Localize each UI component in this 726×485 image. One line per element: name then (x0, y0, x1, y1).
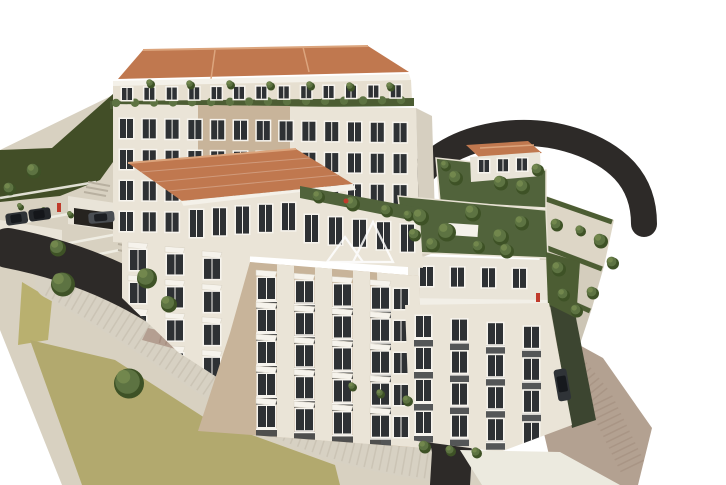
tree-highlight (117, 370, 131, 384)
tree-highlight (349, 383, 353, 387)
window-mullion (239, 87, 240, 99)
window-mullion (400, 123, 401, 142)
tree-highlight (533, 164, 538, 169)
window-mullion (149, 181, 150, 200)
tree-highlight (414, 210, 421, 217)
tree-highlight (517, 180, 523, 186)
window-mullion (495, 355, 496, 376)
tree-highlight (227, 81, 231, 85)
window-mullion (265, 205, 266, 232)
tree-highlight (474, 241, 479, 246)
window-awning (202, 284, 222, 291)
window-mullion (395, 85, 396, 97)
balcony-rail-top (294, 400, 315, 402)
balcony-rail-top (486, 346, 505, 348)
window-mullion (354, 122, 355, 141)
window-awning (256, 398, 277, 405)
balcony-rail-top (256, 333, 277, 335)
red-flower (344, 199, 349, 204)
balcony-rail-top (294, 368, 315, 370)
hedge-shrub (359, 96, 367, 104)
building-c-pilaster (353, 271, 370, 445)
window-mullion (401, 417, 402, 437)
window-awning (202, 317, 222, 324)
tree-highlight (472, 448, 477, 453)
window-mullion (216, 87, 217, 99)
car-windshield (33, 210, 45, 220)
window-mullion (149, 119, 150, 138)
tree-highlight (410, 229, 415, 234)
window-awning (165, 246, 185, 253)
window-awning (256, 334, 277, 341)
tree-highlight (588, 287, 593, 292)
window-mullion (359, 220, 360, 247)
balcony-rail-top (332, 339, 353, 341)
tree-highlight (307, 82, 311, 86)
tree-highlight (559, 289, 564, 294)
tree-highlight (501, 244, 507, 250)
window-mullion (331, 153, 332, 172)
window-mullion (283, 86, 284, 98)
window-mullion (426, 267, 427, 286)
window-mullion (401, 289, 402, 309)
window-mullion (263, 121, 264, 140)
tree-highlight (404, 211, 409, 216)
window-awning (370, 280, 391, 287)
window-mullion (531, 359, 532, 380)
hedge-shrub (112, 99, 120, 107)
tree-highlight (495, 176, 501, 182)
window-mullion (126, 119, 127, 138)
window-mullion (459, 384, 460, 405)
penthouse-cottage-windows (478, 157, 529, 174)
balcony-rail-top (256, 397, 277, 399)
window-mullion (335, 217, 336, 244)
window-mullion (194, 87, 195, 99)
window-mullion (138, 283, 139, 303)
balcony-rail-top (294, 432, 315, 434)
balcony-rail-top (332, 371, 353, 373)
window-mullion (266, 374, 267, 395)
window-mullion (531, 391, 532, 412)
hedge-shrub (245, 97, 253, 105)
window-awning (294, 305, 315, 312)
balcony-rail-top (332, 307, 353, 309)
window-awning (294, 273, 315, 280)
balcony-rail-top (414, 339, 433, 341)
window-awning (294, 369, 315, 376)
tree-highlight (387, 83, 391, 87)
window-mullion (423, 380, 424, 401)
window-mullion (407, 225, 408, 252)
tree-highlight (68, 212, 71, 215)
tree-highlight (572, 305, 577, 310)
window-mullion (423, 316, 424, 337)
window-mullion (342, 380, 343, 401)
window-mullion (172, 213, 173, 232)
window-awning (370, 376, 391, 383)
window-mullion (311, 215, 312, 242)
window-mullion (459, 416, 460, 437)
window-awning (294, 337, 315, 344)
window-mullion (488, 268, 489, 287)
window-mullion (342, 412, 343, 433)
tree-highlight (28, 164, 34, 170)
window-awning (202, 350, 222, 357)
balcony-rail-top (486, 378, 505, 380)
window-mullion (138, 250, 139, 270)
balcony-rail-top (414, 435, 433, 437)
window-mullion (354, 153, 355, 172)
window-mullion (401, 385, 402, 405)
balcony-rail-top (370, 374, 391, 376)
tree-highlight (446, 446, 451, 451)
tree-highlight (314, 191, 319, 196)
tree-highlight (187, 81, 191, 85)
render-viewport: Aerial 3D architectural rendering of a h… (0, 0, 726, 485)
balcony-rail-top (370, 342, 391, 344)
window-awning (332, 276, 353, 283)
window-mullion (266, 406, 267, 427)
balcony-rail-top (294, 336, 315, 338)
tree-highlight (139, 269, 148, 278)
balcony-rail-top (256, 429, 277, 431)
balcony-rail-top (294, 304, 315, 306)
balcony-rail-top (414, 403, 433, 405)
window-awning (256, 302, 277, 309)
window-awning (165, 279, 185, 286)
window-mullion (531, 327, 532, 348)
window-mullion (459, 320, 460, 341)
red-accent (536, 293, 540, 302)
window-mullion (373, 86, 374, 98)
tree-highlight (51, 241, 58, 248)
window-awning (202, 251, 222, 258)
tree-highlight (553, 262, 559, 268)
window-mullion (194, 120, 195, 139)
balcony-rail-top (486, 442, 505, 444)
tree-highlight (147, 80, 151, 84)
window-mullion (495, 323, 496, 344)
window-mullion (304, 281, 305, 302)
window-awning (256, 270, 277, 277)
window-mullion (266, 278, 267, 299)
window-awning (332, 404, 353, 411)
window-mullion (495, 419, 496, 440)
window-mullion (149, 88, 150, 100)
window-awning (332, 340, 353, 347)
window-mullion (401, 353, 402, 373)
window-mullion (531, 423, 532, 444)
window-mullion (380, 352, 381, 373)
window-mullion (171, 88, 172, 100)
tree-highlight (267, 82, 271, 86)
window-mullion (196, 210, 197, 237)
window-mullion (286, 121, 287, 140)
tree-highlight (427, 238, 433, 244)
window-awning (370, 344, 391, 351)
window-mullion (380, 416, 381, 437)
building-c-pilaster (277, 264, 294, 438)
tree-highlight (494, 230, 501, 237)
tree-highlight (466, 206, 473, 213)
window-mullion (380, 320, 381, 341)
window-mullion (304, 345, 305, 366)
balcony-rail-top (450, 374, 469, 376)
balcony-rail-top (486, 410, 505, 412)
window-mullion (175, 254, 176, 274)
window-mullion (377, 123, 378, 142)
window-awning (294, 401, 315, 408)
window-mullion (266, 342, 267, 363)
balcony-rail-top (256, 301, 277, 303)
balcony-rail-top (370, 406, 391, 408)
tree-highlight (516, 216, 522, 222)
window-mullion (503, 159, 504, 171)
window-mullion (423, 348, 424, 369)
window-mullion (261, 87, 262, 99)
balcony-rail-top (450, 342, 469, 344)
window-mullion (217, 120, 218, 139)
balcony-rail-top (522, 413, 541, 415)
tree-highlight (162, 297, 169, 304)
window-mullion (495, 387, 496, 408)
tree-highlight (403, 396, 408, 401)
tree-highlight (608, 257, 613, 262)
window-mullion (304, 409, 305, 430)
window-mullion (423, 412, 424, 433)
window-awning (332, 308, 353, 315)
window-mullion (380, 288, 381, 309)
window-mullion (240, 121, 241, 140)
tree-highlight (576, 226, 581, 231)
window-awning (128, 242, 148, 249)
balcony-rail-top (332, 435, 353, 437)
window-mullion (212, 325, 213, 345)
balcony-rail-top (450, 406, 469, 408)
window-mullion (459, 352, 460, 373)
window-mullion (484, 160, 485, 172)
window-awning (370, 408, 391, 415)
balcony-rail-top (522, 381, 541, 383)
window-mullion (304, 313, 305, 334)
tree-highlight (595, 234, 601, 240)
window-mullion (401, 321, 402, 341)
balcony-rail-top (332, 403, 353, 405)
window-mullion (342, 348, 343, 369)
window-mullion (400, 154, 401, 173)
balcony-rail-top (370, 310, 391, 312)
tree-highlight (5, 183, 10, 188)
window-mullion (212, 292, 213, 312)
window-mullion (242, 207, 243, 234)
window-mullion (457, 268, 458, 287)
window-mullion (304, 377, 305, 398)
tree-highlight (377, 390, 381, 394)
tree-highlight (347, 83, 351, 87)
window-mullion (522, 158, 523, 170)
red-accent (57, 203, 61, 212)
window-mullion (519, 269, 520, 288)
window-mullion (175, 320, 176, 340)
window-mullion (149, 212, 150, 231)
window-mullion (126, 212, 127, 231)
building-c-pilaster (315, 267, 332, 441)
tree-highlight (420, 441, 425, 446)
window-mullion (212, 259, 213, 279)
window-mullion (126, 181, 127, 200)
car-windshield (10, 214, 22, 224)
window-mullion (377, 154, 378, 173)
window-awning (332, 372, 353, 379)
window-mullion (308, 122, 309, 141)
window-mullion (342, 284, 343, 305)
tree-highlight (382, 205, 387, 210)
balcony-rail-top (522, 445, 541, 447)
window-mullion (219, 208, 220, 235)
window-awning (256, 366, 277, 373)
window-awning (165, 312, 185, 319)
window-mullion (331, 122, 332, 141)
tree-highlight (439, 224, 447, 232)
balcony-rail-top (370, 438, 391, 440)
render-scene: Aerial 3D architectural rendering of a h… (0, 0, 726, 485)
window-awning (370, 312, 391, 319)
balcony-rail-top (256, 365, 277, 367)
balcony-rail-top (450, 438, 469, 440)
window-mullion (126, 150, 127, 169)
tree-highlight (18, 204, 21, 207)
balcony-rail-top (414, 371, 433, 373)
window-mullion (127, 88, 128, 100)
tree-highlight (552, 219, 557, 224)
car-windshield (94, 213, 108, 222)
window-mullion (306, 86, 307, 98)
tree-highlight (53, 273, 64, 284)
window-mullion (328, 86, 329, 98)
tree-highlight (450, 171, 456, 177)
window-mullion (288, 203, 289, 230)
car (88, 211, 115, 224)
tree-highlight (441, 161, 446, 166)
window-mullion (266, 310, 267, 331)
building-a-roof (118, 46, 409, 79)
window-mullion (172, 120, 173, 139)
balcony-rail-top (522, 349, 541, 351)
window-mullion (342, 316, 343, 337)
